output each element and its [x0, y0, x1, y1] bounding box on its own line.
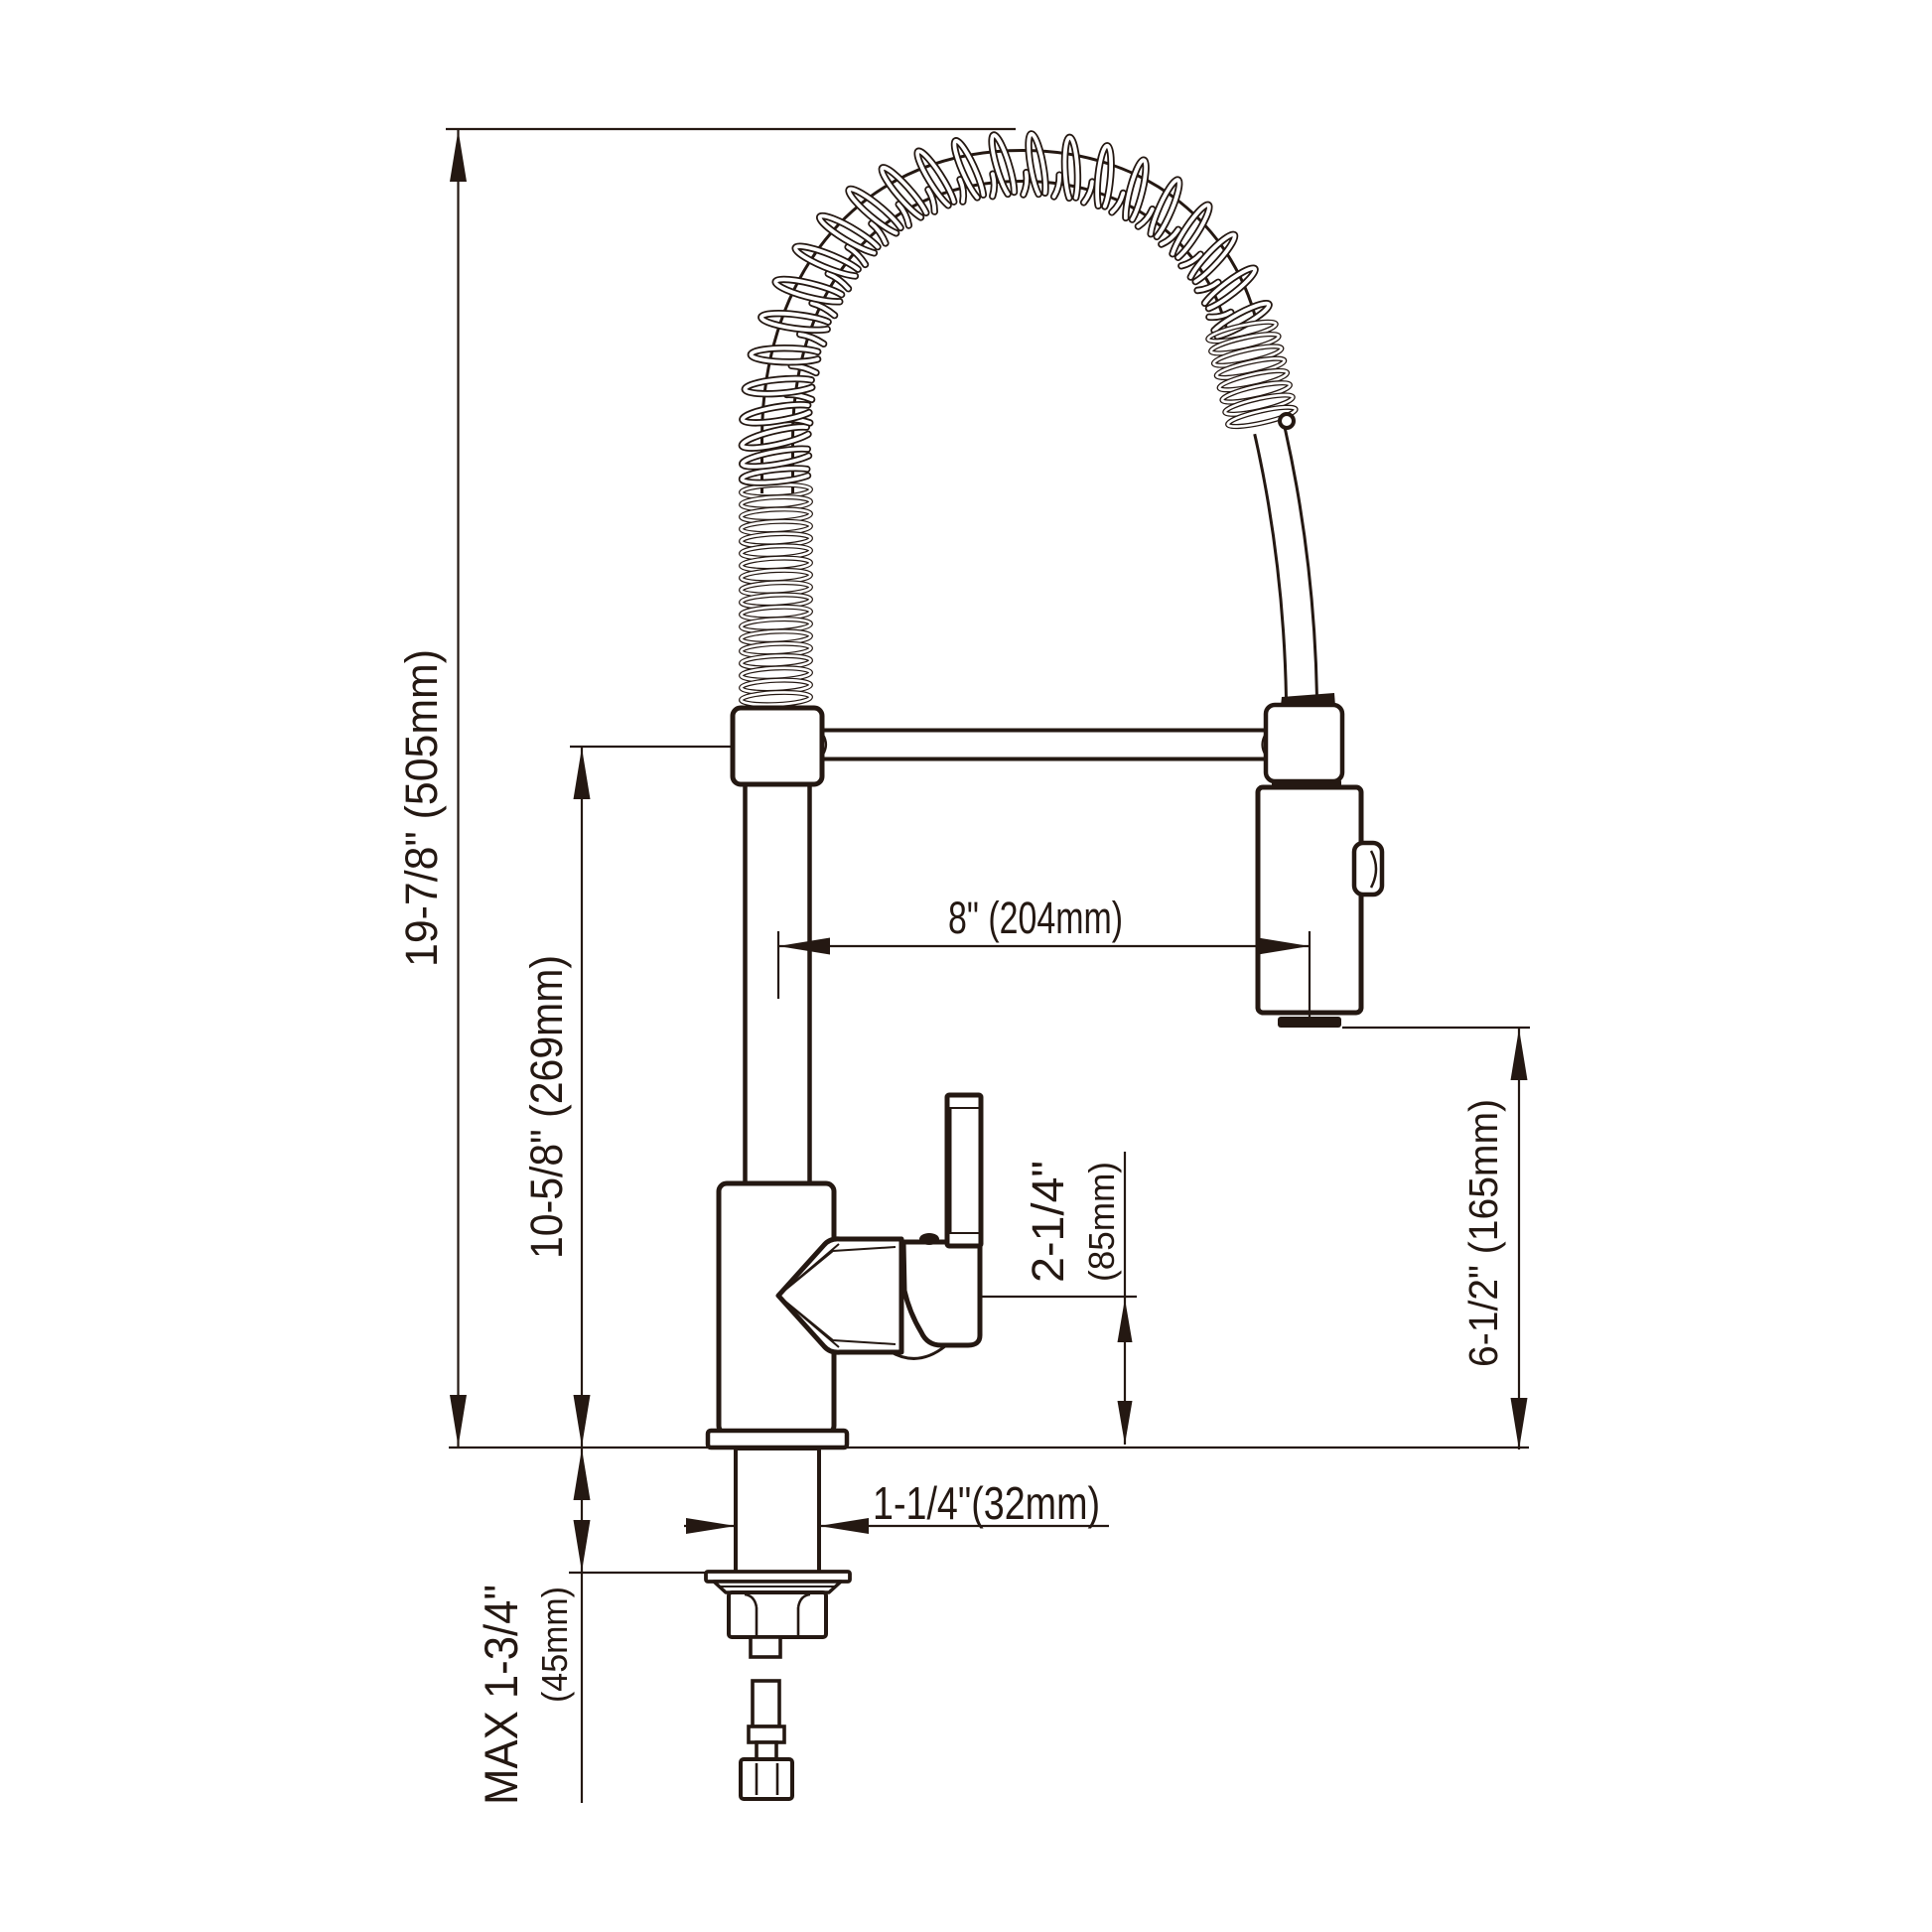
svg-text:(85mm): (85mm)	[1081, 1162, 1122, 1282]
svg-text:2-1/4": 2-1/4"	[1023, 1161, 1073, 1283]
svg-text:8" (204mm): 8" (204mm)	[948, 893, 1123, 943]
svg-text:MAX 1-3/4": MAX 1-3/4"	[475, 1585, 527, 1805]
svg-text:(45mm): (45mm)	[534, 1587, 575, 1703]
svg-text:6-1/2" (165mm): 6-1/2" (165mm)	[1460, 1099, 1506, 1367]
svg-text:10-5/8" (269mm): 10-5/8" (269mm)	[521, 955, 572, 1259]
svg-text:1-1/4"(32mm): 1-1/4"(32mm)	[873, 1477, 1100, 1529]
svg-text:19-7/8" (505mm): 19-7/8" (505mm)	[396, 649, 447, 967]
